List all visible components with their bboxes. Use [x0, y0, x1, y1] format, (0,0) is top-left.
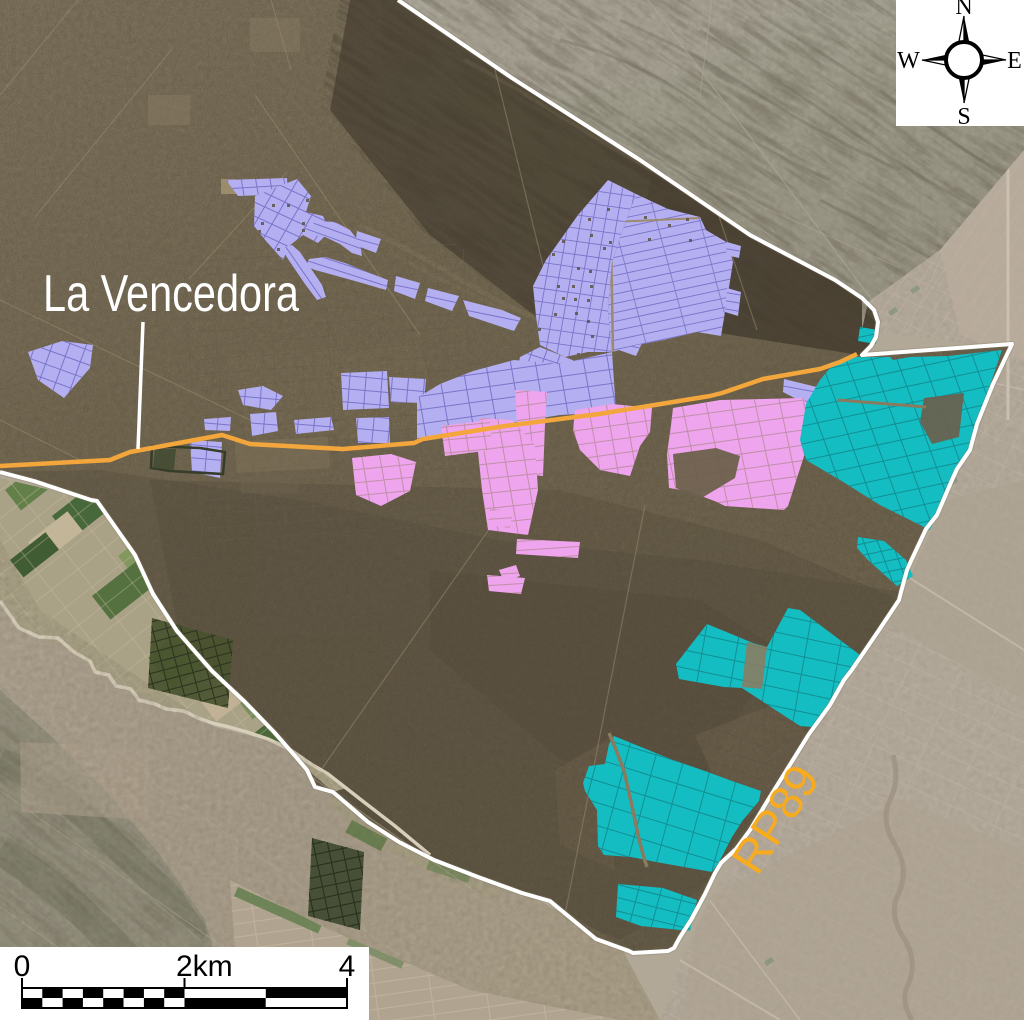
svg-text:La Vencedora: La Vencedora [43, 265, 299, 323]
svg-text:E: E [1007, 48, 1022, 74]
svg-text:W: W [897, 48, 920, 74]
svg-text:N: N [955, 0, 972, 20]
svg-text:S: S [957, 104, 970, 130]
